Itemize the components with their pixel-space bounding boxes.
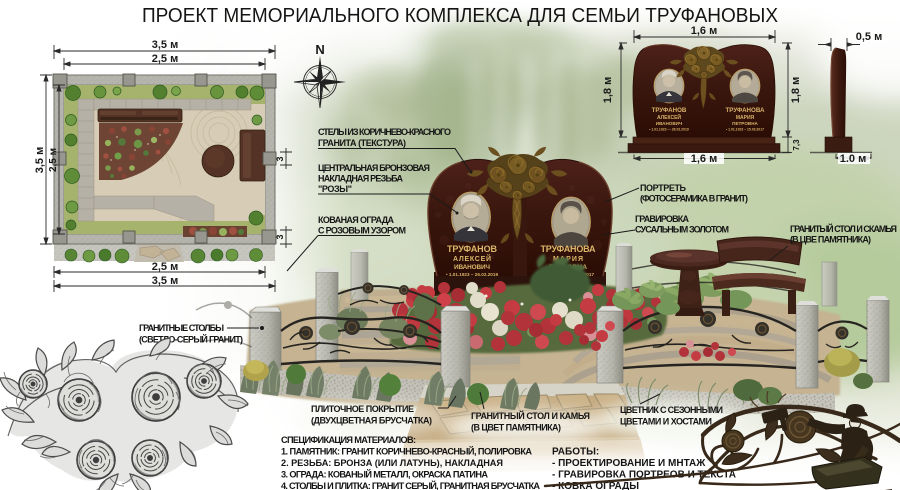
svg-text:ГРАНИТНЫЙ СТОЛ И КАМЬЯ: ГРАНИТНЫЙ СТОЛ И КАМЬЯ bbox=[471, 410, 590, 421]
svg-text:3,5 м: 3,5 м bbox=[152, 275, 179, 287]
svg-text:4. СТОЛБЫ И ПЛИТКА: ГРАНИТ СЕР: 4. СТОЛБЫ И ПЛИТКА: ГРАНИТ СЕРЫЙ, ГРАНИТ… bbox=[281, 480, 540, 490]
svg-text:КОВАНАЯ ОГРАДА: КОВАНАЯ ОГРАДА bbox=[318, 215, 395, 225]
svg-text:• 1.01.1923 – 26.02.2019: • 1.01.1923 – 26.02.2019 bbox=[446, 272, 498, 277]
svg-text:(СВЕТЛО-СЕРЫЙ ГРАНИТ): (СВЕТЛО-СЕРЫЙ ГРАНИТ) bbox=[139, 334, 243, 345]
svg-text:АЛЕКСЕЙ: АЛЕКСЕЙ bbox=[453, 254, 491, 263]
svg-text:ПЛИТОЧНОЕ ПОКРЫТИЕ: ПЛИТОЧНОЕ ПОКРЫТИЕ bbox=[311, 404, 414, 414]
svg-text:(В ЦВЕ ПАМЯТНИКА): (В ЦВЕ ПАМЯТНИКА) bbox=[790, 235, 871, 245]
svg-text:1,6 м: 1,6 м bbox=[691, 25, 718, 37]
svg-text:С РОЗОВЫМ УЗОРОМ: С РОЗОВЫМ УЗОРОМ bbox=[318, 226, 406, 236]
svg-text:ЦЕНТРАЛЬНАЯ БРОНЗОВАЯ: ЦЕНТРАЛЬНАЯ БРОНЗОВАЯ bbox=[318, 163, 430, 173]
svg-text:3. ОГРАДА: КОВАНЫЙ МЕТАЛЛ, ОКР: 3. ОГРАДА: КОВАНЫЙ МЕТАЛЛ, ОКРАСКА ПАТИН… bbox=[281, 469, 488, 480]
svg-text:ТРУФАНОВА: ТРУФАНОВА bbox=[726, 107, 765, 114]
svg-text:1. ПАМЯТНИК: ГРАНИТ КОРИЧНЕВО-: 1. ПАМЯТНИК: ГРАНИТ КОРИЧНЕВО-КРАСНЫЙ, П… bbox=[281, 446, 532, 457]
svg-text:0,5 м: 0,5 м bbox=[856, 31, 883, 43]
svg-text:РАБОТЫ:: РАБОТЫ: bbox=[552, 447, 599, 458]
svg-text:ПОРТРЕТЬ: ПОРТРЕТЬ bbox=[640, 183, 687, 193]
svg-text:(ФОТОСЕРАМИКА В ГРАНИТ): (ФОТОСЕРАМИКА В ГРАНИТ) bbox=[640, 194, 748, 204]
svg-text:7,3: 7,3 bbox=[792, 139, 801, 151]
svg-text:ПРОЕКТ МЕМОРИАЛЬНОГО КОМПЛЕКСА: ПРОЕКТ МЕМОРИАЛЬНОГО КОМПЛЕКСА ДЛЯ СЕМЬИ… bbox=[142, 4, 778, 27]
svg-text:"РОЗЫ": "РОЗЫ" bbox=[318, 184, 352, 194]
svg-text:АЛЕКСЕЙ: АЛЕКСЕЙ bbox=[657, 113, 681, 121]
svg-text:ГРАВИРОВКА: ГРАВИРОВКА bbox=[635, 214, 690, 224]
svg-text:2. РЕЗЬБА: БРОНЗА (ИЛИ ЛАТУНЬ): 2. РЕЗЬБА: БРОНЗА (ИЛИ ЛАТУНЬ), НАКЛАДНА… bbox=[281, 458, 503, 468]
svg-text:(ДВУХЦВЕТНАЯ БРУСЧАТКА): (ДВУХЦВЕТНАЯ БРУСЧАТКА) bbox=[311, 416, 432, 426]
svg-text:3,5 м: 3,5 м bbox=[34, 147, 46, 174]
svg-text:СУСАЛЬНЫМ ЗОЛОТОМ: СУСАЛЬНЫМ ЗОЛОТОМ bbox=[635, 225, 729, 235]
svg-text:ТРУФАНОВА: ТРУФАНОВА bbox=[541, 244, 597, 254]
svg-text:3: 3 bbox=[275, 156, 285, 161]
svg-text:1,6 м: 1,6 м bbox=[691, 153, 718, 165]
svg-text:ГРАНИТЫЙ СТОЛ И СКАМЬЯ: ГРАНИТЫЙ СТОЛ И СКАМЬЯ bbox=[790, 223, 897, 234]
svg-text:ГРАНИТА (ТЕКСТУРА): ГРАНИТА (ТЕКСТУРА) bbox=[318, 138, 406, 148]
svg-text:ИВАНОВИЧ: ИВАНОВИЧ bbox=[656, 121, 682, 126]
svg-text:ПЕТРОВНА: ПЕТРОВНА bbox=[732, 121, 758, 126]
svg-text:ЦВЕТНИК С СЕЗОННЫМИ: ЦВЕТНИК С СЕЗОННЫМИ bbox=[620, 405, 723, 415]
svg-text:2,5 м: 2,5 м bbox=[48, 148, 59, 172]
svg-text:3,5 м: 3,5 м bbox=[152, 39, 179, 51]
svg-text:1,8 м: 1,8 м bbox=[790, 77, 802, 104]
svg-text:ТРУФАНОВ: ТРУФАНОВ bbox=[652, 107, 687, 114]
svg-text:1.0 м: 1.0 м bbox=[840, 153, 867, 165]
svg-text:(В ЦВЕТ ПАМЯТНИКА): (В ЦВЕТ ПАМЯТНИКА) bbox=[471, 423, 561, 433]
svg-text:СПЕЦИФИКАЦИЯ МАТЕРИАЛОВ:: СПЕЦИФИКАЦИЯ МАТЕРИАЛОВ: bbox=[281, 435, 416, 445]
svg-text:ТРУФАНОВ: ТРУФАНОВ bbox=[447, 244, 498, 254]
svg-text:• 1.01.1923 – 15.03.2017: • 1.01.1923 – 15.03.2017 bbox=[726, 128, 764, 132]
svg-text:ЦВЕТАМИ И ХОСТАМИ: ЦВЕТАМИ И ХОСТАМИ bbox=[620, 417, 712, 427]
svg-text:ИВАНОВИЧ: ИВАНОВИЧ bbox=[454, 264, 491, 271]
svg-text:ГРАНИТНЫЕ СТОЛБЫ: ГРАНИТНЫЕ СТОЛБЫ bbox=[139, 323, 224, 333]
svg-text:СТЕЛЫ ИЗ КОРИЧНЕВО-КРАСНОГО: СТЕЛЫ ИЗ КОРИЧНЕВО-КРАСНОГО bbox=[318, 127, 451, 137]
svg-text:- ПРОЕКТИРОВАНИЕ И МНТАЖ: - ПРОЕКТИРОВАНИЕ И МНТАЖ bbox=[552, 458, 706, 469]
svg-text:2,5 м: 2,5 м bbox=[152, 53, 179, 65]
svg-text:3: 3 bbox=[275, 234, 285, 239]
svg-text:2,5 м: 2,5 м bbox=[152, 261, 179, 273]
svg-text:1,8 м: 1,8 м bbox=[602, 77, 614, 104]
svg-text:• 1.01.1923 — 26.02.2019: • 1.01.1923 — 26.02.2019 bbox=[649, 128, 689, 132]
svg-text:N: N bbox=[315, 42, 324, 57]
svg-text:НАКЛАДНАЯ РЕЗЬБА: НАКЛАДНАЯ РЕЗЬБА bbox=[318, 174, 404, 184]
